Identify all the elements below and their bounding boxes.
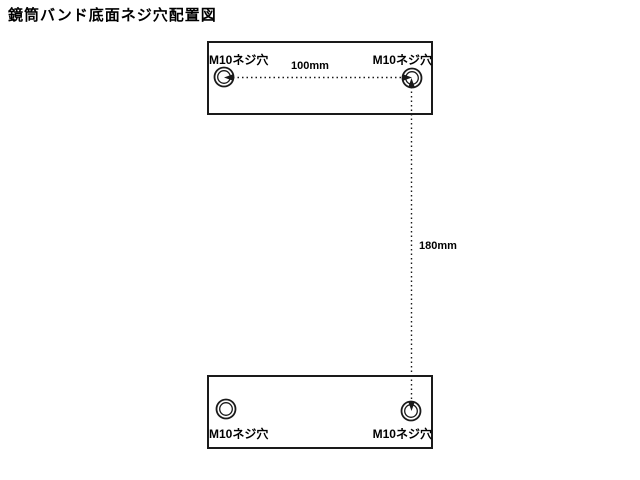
diagram-canvas: 鏡筒バンド底面ネジ穴配置図 M10ネジ穴 M10ネジ [0, 0, 640, 480]
hole-label-bottom-left: M10ネジ穴 [209, 425, 268, 442]
dimension-label-horizontal: 100mm [270, 60, 350, 72]
hole-label-bottom-right: M10ネジ穴 [340, 425, 432, 442]
screw-hole-layout-drawing [0, 0, 640, 480]
hole-label-top-left: M10ネジ穴 [209, 51, 268, 68]
hole-label-top-right: M10ネジ穴 [340, 51, 432, 68]
dimension-label-vertical: 180mm [419, 240, 457, 252]
